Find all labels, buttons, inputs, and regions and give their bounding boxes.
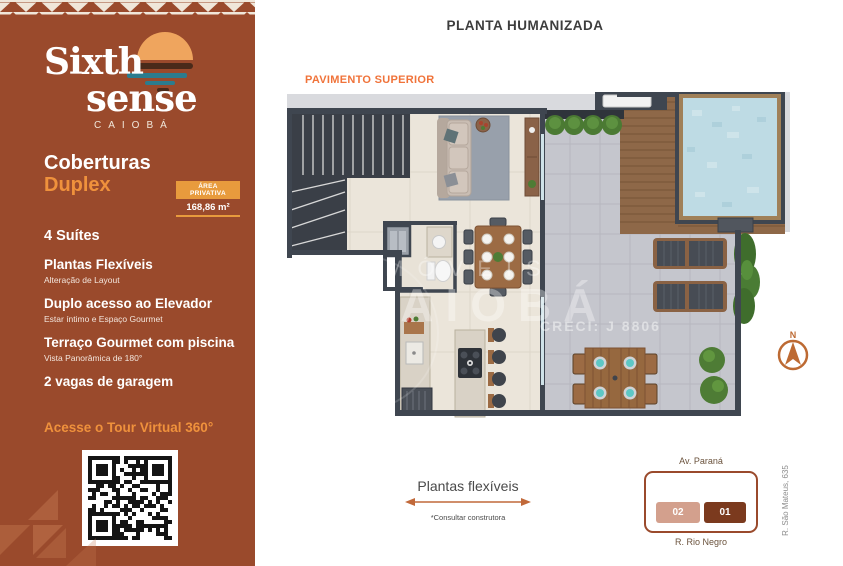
flexible-plans-subtitle: *Consultar construtora xyxy=(393,513,543,522)
logo-word-1: Sixth xyxy=(44,44,143,80)
street-label-top: Av. Paraná xyxy=(644,456,758,466)
unit-type-title: Coberturas Duplex xyxy=(44,153,151,196)
logo-subtitle: CAIOBÁ xyxy=(94,120,174,131)
building-location-diagram: 02 01 xyxy=(644,471,758,533)
brochure-page: Sixth sense CAIOBÁ Coberturas Duplex ÁRE… xyxy=(0,0,843,566)
plan-panel: PLANTA HUMANIZADA PAVIMENTO SUPERIOR xyxy=(255,0,843,566)
street-label-right: R. São Mateus, 635 xyxy=(753,468,817,532)
feature-title: Duplo acesso ao Elevador xyxy=(44,295,244,313)
sofa xyxy=(437,118,471,198)
floor-plan xyxy=(287,92,790,432)
street-label-right-text: R. São Mateus, 635 xyxy=(781,465,790,536)
private-area-badge: ÁREA PRIVATIVA 168,86 m² xyxy=(176,181,240,217)
vanity xyxy=(427,227,452,257)
flexible-plans-note: Plantas flexíveis *Consultar construtora xyxy=(393,478,543,522)
street-label-bottom: R. Rio Negro xyxy=(644,537,758,547)
triangle-pattern-strip xyxy=(0,0,255,15)
unit-block-02: 02 xyxy=(656,502,700,523)
feature-title: Plantas Flexíveis xyxy=(44,256,244,274)
brand-logo: Sixth sense CAIOBÁ xyxy=(40,28,240,133)
corner-triangle-decoration xyxy=(0,440,140,566)
outdoor-dining-set xyxy=(573,348,657,408)
feature-title: Terraço Gourmet com piscina xyxy=(44,334,244,352)
feature-list: Plantas Flexíveis Alteração de Layout Du… xyxy=(44,256,244,400)
double-arrow-icon xyxy=(403,497,533,507)
feature-title: 2 vagas de garagem xyxy=(44,373,244,391)
flexible-plans-title: Plantas flexíveis xyxy=(393,478,543,494)
sideboard xyxy=(525,118,539,196)
unit-block-01: 01 xyxy=(704,502,746,523)
area-badge-value: 168,86 m² xyxy=(176,202,240,213)
feature-item: Plantas Flexíveis Alteração de Layout xyxy=(44,256,244,286)
kitchen-sink xyxy=(406,342,423,364)
unit-type-line2: Duplex xyxy=(44,175,151,197)
feature-subtitle: Vista Panorâmica de 180° xyxy=(44,352,244,364)
floor-level-label: PAVIMENTO SUPERIOR xyxy=(305,74,434,86)
pool-platform xyxy=(718,218,753,232)
unit-type-line1: Coberturas xyxy=(44,153,151,175)
suites-count: 4 Suítes xyxy=(44,228,100,244)
toilet xyxy=(427,261,451,282)
compass-icon xyxy=(775,337,811,373)
page-title: PLANTA HUMANIZADA xyxy=(335,18,715,33)
compass: N xyxy=(775,330,811,378)
pool xyxy=(675,92,785,224)
virtual-tour-link[interactable]: Acesse o Tour Virtual 360° xyxy=(44,420,213,435)
feature-item: Duplo acesso ao Elevador Estar íntimo e … xyxy=(44,295,244,325)
cutting-board xyxy=(404,322,424,334)
feature-subtitle: Estar íntimo e Espaço Gourmet xyxy=(44,313,244,325)
logo-word-2: sense xyxy=(86,80,197,117)
feature-subtitle: Alteração de Layout xyxy=(44,274,244,286)
sidebar: Sixth sense CAIOBÁ Coberturas Duplex ÁRE… xyxy=(0,0,255,566)
feature-item: 2 vagas de garagem xyxy=(44,373,244,391)
area-badge-label: ÁREA PRIVATIVA xyxy=(176,181,240,199)
side-table xyxy=(476,118,490,132)
stove xyxy=(458,348,482,378)
feature-item: Terraço Gourmet com piscina Vista Panorâ… xyxy=(44,334,244,364)
